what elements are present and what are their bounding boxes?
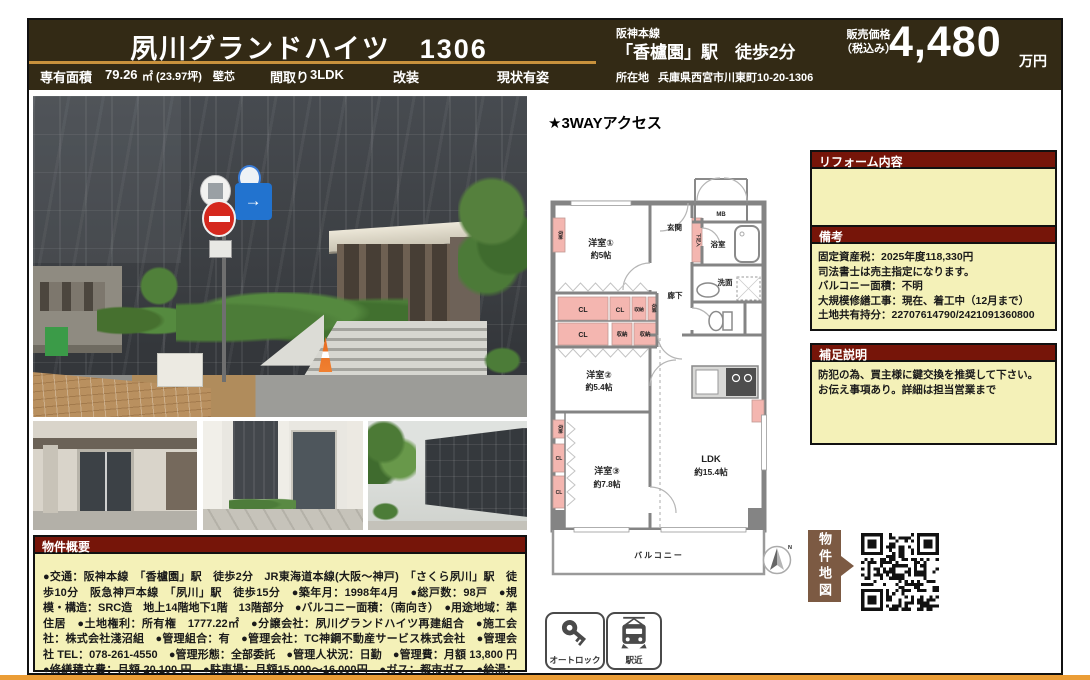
reform-box: リフォーム内容 <box>810 150 1057 236</box>
photo-element <box>203 509 363 530</box>
svg-text:収納: 収納 <box>639 330 651 338</box>
renovation-flag: 改装 <box>393 67 419 86</box>
tree <box>458 173 527 301</box>
svg-text:CL: CL <box>578 307 588 314</box>
notes-box-body: 固定資産税：2025年度118,330円 司法書士は売主指定になります。 バルコ… <box>812 246 1055 329</box>
svg-text:収納: 収納 <box>616 330 628 338</box>
svg-text:廊下: 廊下 <box>668 290 683 300</box>
no-entry-sign <box>202 200 236 237</box>
svg-text:洋室③: 洋室③ <box>594 465 620 476</box>
map-badge: 物件地図 <box>808 530 841 602</box>
flyer-page: 夙川グランドハイツ 1306 阪神本線 「香櫨園」駅 徒歩2分 販売価格 （税込… <box>27 18 1063 675</box>
sub-photo-entrance <box>33 421 197 530</box>
price-label-text: 販売価格 <box>841 28 896 42</box>
supplement-line: お伝え事項あり。詳細は担当営業まで <box>818 383 1049 398</box>
glass-doors <box>77 449 134 518</box>
svg-text:浴室: 浴室 <box>711 239 726 249</box>
address-value: 兵庫県西宮市川東町10-20-1306 <box>658 69 813 85</box>
layout-value: 3LDK <box>310 67 344 82</box>
main-photo: → <box>33 96 527 417</box>
svg-text:約5.4帖: 約5.4帖 <box>585 382 612 392</box>
note-line: 土地共有持分：22707614790/2421091360800 <box>818 308 1049 323</box>
flyer-canvas: 夙川グランドハイツ 1306 阪神本線 「香櫨園」駅 徒歩2分 販売価格 （税込… <box>0 0 1090 680</box>
price-label: 販売価格 （税込み） <box>841 28 896 56</box>
small-sign <box>209 240 232 258</box>
badge-station-near: 駅近 <box>606 612 662 670</box>
note-line: 司法書士は売主指定になります。 <box>818 265 1049 280</box>
svg-text:MB: MB <box>716 212 726 218</box>
netting-building <box>425 428 527 517</box>
price-tax-note: （税込み） <box>841 42 896 56</box>
photo-element <box>166 452 197 511</box>
train-icon <box>614 616 654 652</box>
area-value: 79.26 <box>105 67 138 82</box>
svg-text:CL: CL <box>616 307 625 314</box>
svg-text:約5帖: 約5帖 <box>591 250 611 260</box>
notes-box: 備考 固定資産税：2025年度118,330円 司法書士は売主指定になります。 … <box>810 225 1057 331</box>
overview-box: 物件概要 ●交通：阪神本線 「香櫨園」駅 徒歩2分 JR東海道本線(大阪～神戸)… <box>33 535 527 672</box>
property-title: 夙川グランドハイツ 1306 <box>29 27 589 66</box>
overview-box-body: ●交通：阪神本線 「香櫨園」駅 徒歩2分 JR東海道本線(大阪～神戸) 「さくら… <box>35 556 525 670</box>
north-label: N <box>788 545 792 551</box>
hedge <box>97 301 181 340</box>
address-label: 所在地 <box>616 69 649 85</box>
badge-autolock: オートロック <box>545 612 605 670</box>
photo-element <box>368 500 403 524</box>
svg-text:収納: 収納 <box>557 231 564 240</box>
tree <box>368 421 416 484</box>
svg-text:CL: CL <box>578 332 588 339</box>
photo-element <box>40 282 104 311</box>
svg-text:洗面: 洗面 <box>718 277 733 287</box>
price-unit: 万円 <box>1019 51 1047 71</box>
svg-text:玄関: 玄関 <box>667 222 682 232</box>
price-value: 4,480 <box>889 18 1002 67</box>
photo-element <box>33 511 197 530</box>
photo-element <box>105 452 107 515</box>
header-band: 夙川グランドハイツ 1306 阪神本線 「香櫨園」駅 徒歩2分 販売価格 （税込… <box>29 20 1061 90</box>
svg-text:洋室②: 洋室② <box>586 369 612 380</box>
photo-element <box>45 327 67 356</box>
photo-element <box>209 216 230 222</box>
notes-box-title: 備考 <box>812 227 1055 244</box>
svg-text:下足入: 下足入 <box>695 233 702 247</box>
supplement-line: 防犯の為、買主様に鍵交換を推奨して下さい。 <box>818 368 1049 383</box>
qr-code-pattern <box>855 527 945 617</box>
area-detail: ㎡ (23.97坪) 壁芯 <box>142 68 235 84</box>
qr-code <box>855 527 945 617</box>
svg-text:収納: 収納 <box>634 306 644 313</box>
svg-text:LDK: LDK <box>701 454 721 465</box>
reform-box-title: リフォーム内容 <box>812 152 1055 169</box>
footer-accent-strip <box>0 675 1090 680</box>
svg-text:約7.8帖: 約7.8帖 <box>593 479 620 489</box>
svg-text:約15.4帖: 約15.4帖 <box>694 467 728 477</box>
overview-box-title: 物件概要 <box>35 537 525 554</box>
planter <box>157 353 203 387</box>
compass: N <box>764 545 793 574</box>
svg-text:収納: 収納 <box>651 304 658 313</box>
svg-text:収納: 収納 <box>557 425 564 434</box>
floor-plan: N 玄関 MB 浴室 洗面 廊下 洋室① 約5帖 洋室② 約5.4帖 洋室③ 約… <box>549 170 794 580</box>
key-icon <box>553 616 597 652</box>
map-badge-label: 物件地図 <box>815 532 834 600</box>
map-arrow-icon <box>841 556 854 576</box>
sub-photo-building <box>368 421 527 530</box>
photo-element <box>43 445 58 513</box>
svg-text:洋室①: 洋室① <box>588 237 614 248</box>
access-note: ★3WAYアクセス <box>548 112 662 133</box>
note-line: 大規模修繕工事：現在、着工中（12月まで） <box>818 294 1049 309</box>
note-line: バルコニー面積：不明 <box>818 279 1049 294</box>
supplement-box-body: 防犯の為、買主様に鍵交換を推奨して下さい。 お伝え事項あり。詳細は担当営業まで <box>812 364 1055 443</box>
supplement-box: 補足説明 防犯の為、買主様に鍵交換を推奨して下さい。 お伝え事項あり。詳細は担当… <box>810 343 1057 445</box>
layout-label: 間取り <box>270 67 309 86</box>
glass-doors <box>291 430 337 515</box>
svg-text:CL: CL <box>556 490 563 496</box>
station-walk: 「香櫨園」駅 徒歩2分 <box>616 38 795 63</box>
photo-element <box>368 521 527 530</box>
blue-arrow-sign: → <box>235 183 272 220</box>
photo-element <box>478 343 527 378</box>
badge-station-near-label: 駅近 <box>608 654 660 666</box>
photo-element <box>33 96 181 263</box>
supplement-box-title: 補足説明 <box>812 345 1055 362</box>
svg-text:CL: CL <box>556 456 563 462</box>
area-label: 専有面積 <box>40 67 92 86</box>
badge-autolock-label: オートロック <box>547 654 603 666</box>
condition-flag: 現状有姿 <box>497 67 549 86</box>
photo-element <box>233 421 278 499</box>
note-line: 固定資産税：2025年度118,330円 <box>818 250 1049 265</box>
photo-element <box>208 183 223 199</box>
sub-photo-courtyard <box>203 421 363 530</box>
photo-element <box>33 438 197 449</box>
svg-text:バルコニー: バルコニー <box>634 551 684 560</box>
